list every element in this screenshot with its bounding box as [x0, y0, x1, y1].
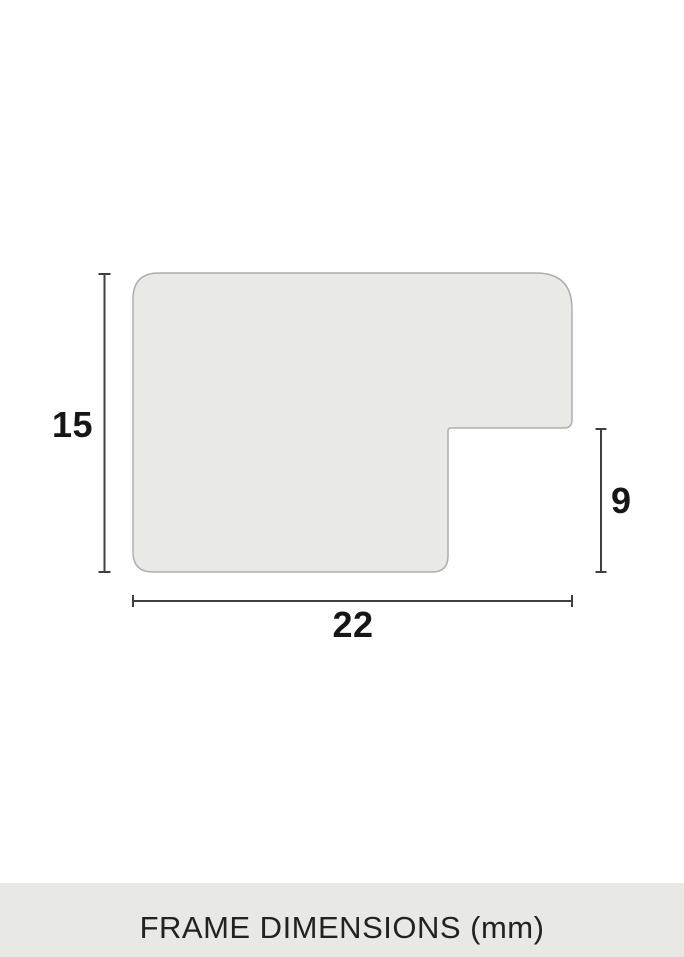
height-dimension-line	[99, 274, 111, 572]
frame-profile-shape	[133, 273, 572, 572]
footer-title: FRAME DIMENSIONS (mm)	[140, 910, 545, 946]
rabbet-dimension-line	[596, 429, 607, 572]
width-dimension-label: 22	[293, 607, 413, 643]
footer-bar: FRAME DIMENSIONS (mm)	[0, 883, 684, 957]
height-dimension-label: 15	[40, 407, 93, 443]
frame-dimensions-page: 15 9 22 FRAME DIMENSIONS (mm)	[0, 0, 684, 957]
rabbet-dimension-label: 9	[611, 483, 651, 519]
